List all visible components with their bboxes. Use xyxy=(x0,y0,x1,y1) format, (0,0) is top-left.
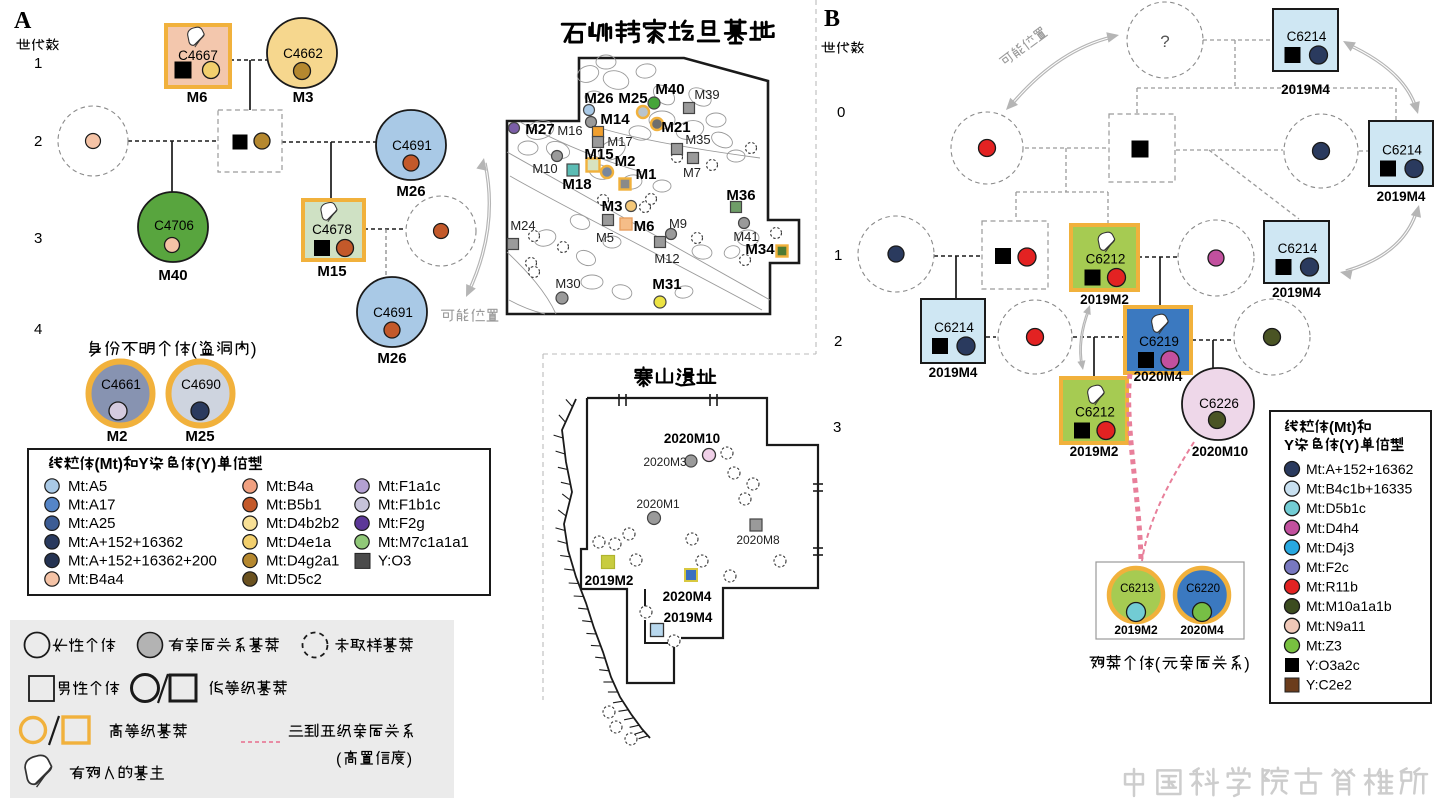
svg-text:): ) xyxy=(1244,655,1250,673)
svg-text:Mt:A+152+16362+200: Mt:A+152+16362+200 xyxy=(68,552,217,569)
svg-text:Mt:F1b1c: Mt:F1b1c xyxy=(378,497,441,514)
svg-text:(: ( xyxy=(191,339,197,359)
svg-text:Y:C2e2: Y:C2e2 xyxy=(1306,677,1352,693)
svg-text:2: 2 xyxy=(834,333,842,350)
svg-text:Mt:D4h4: Mt:D4h4 xyxy=(1306,520,1359,536)
svg-text:Mt:B4c1b+16335: Mt:B4c1b+16335 xyxy=(1306,481,1412,497)
svg-text:2019M2: 2019M2 xyxy=(1114,623,1158,637)
svg-text:M2: M2 xyxy=(107,428,128,445)
svg-text:M16: M16 xyxy=(557,123,582,138)
svg-text:Mt:A17: Mt:A17 xyxy=(68,497,116,514)
svg-text:M7: M7 xyxy=(683,165,701,180)
svg-text:2019M2: 2019M2 xyxy=(585,573,634,588)
svg-text:Mt:M10a1a1b: Mt:M10a1a1b xyxy=(1306,598,1392,614)
svg-text:M40: M40 xyxy=(655,81,684,98)
svg-text:Mt:F2c: Mt:F2c xyxy=(1306,559,1349,575)
svg-text:M27: M27 xyxy=(525,121,554,138)
svg-text:Mt:N9a11: Mt:N9a11 xyxy=(1306,618,1366,634)
svg-text:2019M4: 2019M4 xyxy=(929,365,978,380)
svg-text:Y:O3: Y:O3 xyxy=(378,552,411,569)
svg-text:C4691: C4691 xyxy=(373,305,413,320)
svg-text:(Y): (Y) xyxy=(1339,437,1359,454)
svg-text:2019M4: 2019M4 xyxy=(1272,285,1321,300)
svg-text:C6213: C6213 xyxy=(1120,583,1154,595)
svg-text:Y: Y xyxy=(1284,437,1294,454)
svg-text:(Y): (Y) xyxy=(196,456,217,473)
svg-text:Mt:D4j3: Mt:D4j3 xyxy=(1306,539,1354,555)
svg-text:M6: M6 xyxy=(187,89,208,106)
svg-text:4: 4 xyxy=(34,321,42,338)
svg-text:C6214: C6214 xyxy=(1382,143,1422,158)
svg-text:Mt:B4a: Mt:B4a xyxy=(266,478,314,495)
svg-text:2019M4: 2019M4 xyxy=(1281,82,1330,97)
svg-text:2020M3: 2020M3 xyxy=(643,455,687,469)
svg-text:M26: M26 xyxy=(584,90,613,107)
svg-text:Mt:B4a4: Mt:B4a4 xyxy=(68,571,124,588)
svg-text:C4667: C4667 xyxy=(178,48,218,63)
svg-text:M34: M34 xyxy=(745,241,775,258)
svg-text:2019M4: 2019M4 xyxy=(664,610,713,625)
svg-text:M31: M31 xyxy=(652,276,681,293)
svg-text:Mt:A+152+16362: Mt:A+152+16362 xyxy=(1306,461,1414,477)
svg-text:C4661: C4661 xyxy=(101,377,141,392)
svg-text:M6: M6 xyxy=(634,218,655,235)
svg-text:M9: M9 xyxy=(669,216,687,231)
svg-text:M12: M12 xyxy=(654,251,679,266)
svg-text:(: ( xyxy=(336,751,342,768)
svg-text:M36: M36 xyxy=(726,187,755,204)
svg-text:C4706: C4706 xyxy=(154,218,194,233)
svg-text:C6226: C6226 xyxy=(1199,396,1239,411)
svg-text:Mt:F1a1c: Mt:F1a1c xyxy=(378,478,441,495)
svg-text:(Mt): (Mt) xyxy=(95,456,123,473)
svg-text:B: B xyxy=(824,6,840,32)
svg-text:2019M2: 2019M2 xyxy=(1070,444,1119,459)
svg-text:M35: M35 xyxy=(685,132,710,147)
svg-text:C6212: C6212 xyxy=(1075,405,1115,420)
svg-text:): ) xyxy=(407,751,412,768)
svg-text:M25: M25 xyxy=(618,90,647,107)
svg-text:2019M2: 2019M2 xyxy=(1080,292,1129,307)
svg-text:C6219: C6219 xyxy=(1139,334,1179,349)
svg-text:(: ( xyxy=(1155,655,1161,673)
svg-text:M14: M14 xyxy=(600,111,630,128)
svg-text:M15: M15 xyxy=(317,263,346,280)
svg-text:2019M4: 2019M4 xyxy=(1377,189,1426,204)
svg-text:M25: M25 xyxy=(185,428,214,445)
svg-text:C6220: C6220 xyxy=(1186,583,1220,595)
svg-text:?: ? xyxy=(1160,32,1169,51)
svg-text:Y: Y xyxy=(138,456,149,473)
svg-text:1: 1 xyxy=(834,247,842,264)
svg-text:M40: M40 xyxy=(158,267,187,284)
svg-text:): ) xyxy=(251,339,257,359)
svg-text:Mt:B5b1: Mt:B5b1 xyxy=(266,497,322,514)
svg-text:Mt:M7c1a1a1: Mt:M7c1a1a1 xyxy=(378,534,469,551)
svg-text:M26: M26 xyxy=(396,183,425,200)
svg-text:2020M8: 2020M8 xyxy=(736,533,780,547)
svg-text:M24: M24 xyxy=(510,218,535,233)
svg-text:Mt:D4g2a1: Mt:D4g2a1 xyxy=(266,552,339,569)
svg-text:M5: M5 xyxy=(596,230,614,245)
svg-text:C4691: C4691 xyxy=(392,138,432,153)
svg-text:M26: M26 xyxy=(377,350,406,367)
svg-text:2020M1: 2020M1 xyxy=(636,497,680,511)
svg-text:3: 3 xyxy=(833,419,841,436)
svg-text:Mt:A+152+16362: Mt:A+152+16362 xyxy=(68,534,183,551)
svg-text:C6214: C6214 xyxy=(1278,241,1318,256)
svg-text:Mt:F2g: Mt:F2g xyxy=(378,515,425,532)
svg-text:Y:O3a2c: Y:O3a2c xyxy=(1306,657,1360,673)
svg-text:Mt:D5b1c: Mt:D5b1c xyxy=(1306,500,1366,516)
svg-text:M39: M39 xyxy=(694,87,719,102)
svg-text:Mt:R11b: Mt:R11b xyxy=(1306,579,1358,595)
svg-text:Mt:Z3: Mt:Z3 xyxy=(1306,637,1342,653)
svg-text:C6214: C6214 xyxy=(1287,29,1327,44)
svg-text:C6214: C6214 xyxy=(934,320,974,335)
svg-text:M2: M2 xyxy=(615,153,636,170)
svg-text:2020M4: 2020M4 xyxy=(1134,369,1183,384)
svg-text:2020M4: 2020M4 xyxy=(1180,623,1224,637)
svg-text:C4678: C4678 xyxy=(312,222,352,237)
svg-text:(Mt): (Mt) xyxy=(1329,419,1356,436)
svg-text:0: 0 xyxy=(837,104,845,121)
svg-text:Mt:D5c2: Mt:D5c2 xyxy=(266,571,322,588)
svg-text:Mt:A25: Mt:A25 xyxy=(68,515,116,532)
svg-text:M3: M3 xyxy=(602,198,623,215)
svg-text:Mt:D4b2b2: Mt:D4b2b2 xyxy=(266,515,339,532)
svg-text:2020M10: 2020M10 xyxy=(1192,444,1248,459)
svg-text:C6212: C6212 xyxy=(1086,252,1126,267)
svg-text:M15: M15 xyxy=(584,146,613,163)
svg-text:M1: M1 xyxy=(636,166,657,183)
svg-text:C4662: C4662 xyxy=(283,46,323,61)
svg-text:2020M4: 2020M4 xyxy=(663,589,712,604)
svg-text:2020M10: 2020M10 xyxy=(664,431,720,446)
svg-text:A: A xyxy=(14,8,32,34)
svg-text:C4690: C4690 xyxy=(181,377,221,392)
svg-text:M3: M3 xyxy=(293,89,314,106)
svg-text:M18: M18 xyxy=(562,176,591,193)
svg-text:1: 1 xyxy=(34,55,42,72)
svg-text:2: 2 xyxy=(34,133,42,150)
svg-text:M10: M10 xyxy=(532,161,557,176)
svg-text:Mt:D4e1a: Mt:D4e1a xyxy=(266,534,332,551)
svg-text:M30: M30 xyxy=(555,276,580,291)
svg-text:Mt:A5: Mt:A5 xyxy=(68,478,107,495)
svg-text:3: 3 xyxy=(34,230,42,247)
